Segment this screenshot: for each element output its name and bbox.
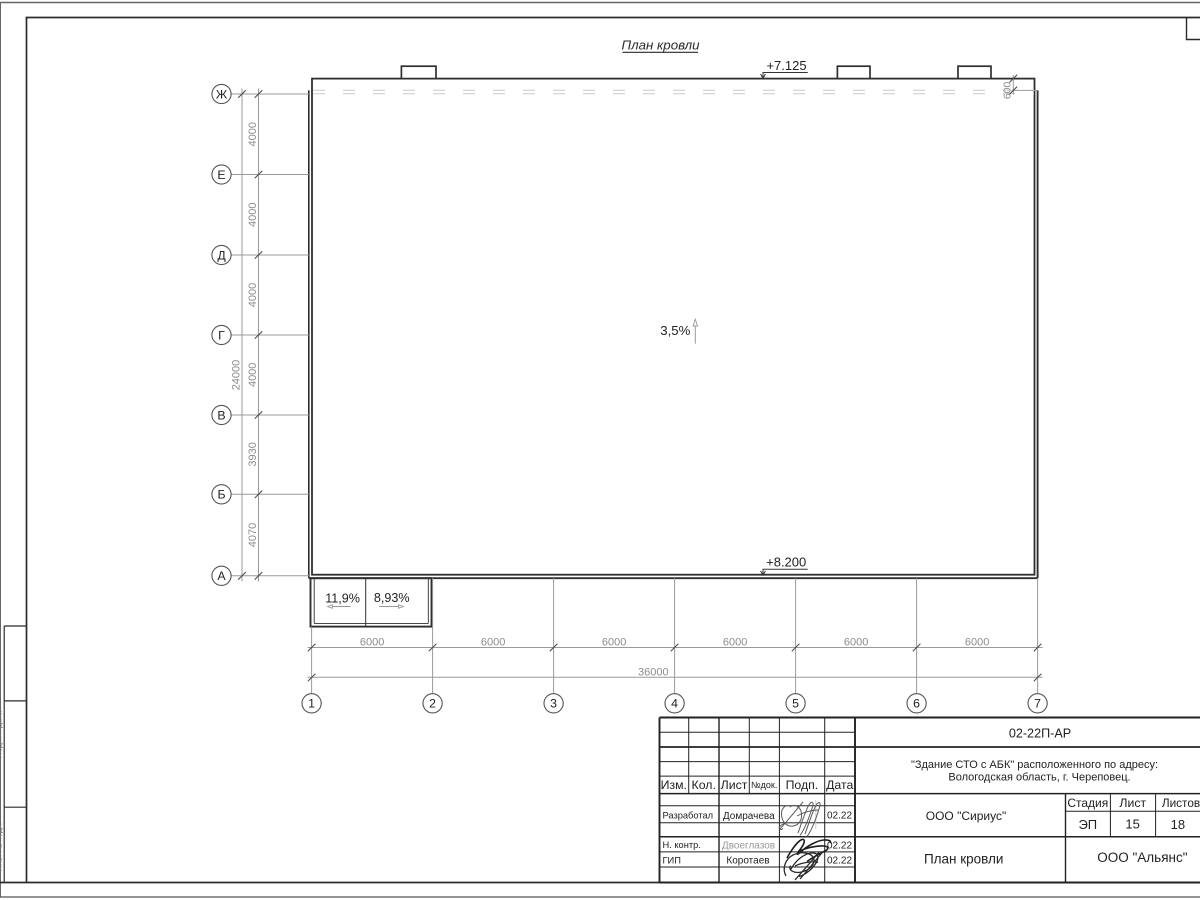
svg-text:Домрачева: Домрачева (723, 811, 775, 822)
svg-text:2: 2 (429, 697, 436, 711)
svg-text:6000: 6000 (965, 637, 989, 649)
svg-text:План кровли: План кровли (621, 38, 700, 53)
svg-text:02.22: 02.22 (827, 856, 852, 867)
svg-text:Дата: Дата (826, 778, 853, 792)
svg-text:6000: 6000 (723, 637, 747, 649)
svg-text:Двоеглазов: Двоеглазов (722, 841, 775, 852)
svg-text:Разработал: Разработал (663, 811, 714, 821)
svg-text:11,9%: 11,9% (325, 591, 360, 605)
svg-text:План кровли: План кровли (924, 851, 1004, 866)
svg-text:В: В (217, 408, 225, 422)
svg-text:4070: 4070 (247, 523, 259, 547)
svg-text:4000: 4000 (247, 283, 259, 307)
svg-text:3: 3 (550, 697, 557, 711)
svg-text:Е: Е (217, 168, 225, 182)
svg-text:15: 15 (1125, 817, 1139, 832)
svg-text:Вологодская область, г. Черепо: Вологодская область, г. Череповец. (948, 772, 1130, 784)
svg-text:4000: 4000 (247, 363, 259, 387)
svg-text:02-22П-АР: 02-22П-АР (1009, 726, 1071, 740)
svg-text:4000: 4000 (247, 122, 259, 146)
svg-text:1: 1 (308, 697, 315, 711)
svg-text:Н. контр.: Н. контр. (663, 840, 701, 850)
svg-text:Лист: Лист (1119, 796, 1146, 810)
svg-text:Кол.: Кол. (692, 778, 716, 792)
svg-text:36000: 36000 (638, 667, 669, 679)
svg-text:Г: Г (218, 328, 225, 342)
svg-text:6000: 6000 (844, 637, 868, 649)
svg-text:ГИП: ГИП (663, 855, 681, 865)
svg-text:ООО "Сириус": ООО "Сириус" (926, 809, 1006, 823)
svg-text:Ж: Ж (216, 87, 228, 101)
svg-text:6000: 6000 (360, 637, 384, 649)
svg-text:Коротаев: Коротаев (726, 856, 769, 867)
svg-text:+7.125: +7.125 (766, 58, 806, 73)
svg-text:18: 18 (1171, 817, 1185, 832)
svg-text:6000: 6000 (602, 637, 626, 649)
svg-text:ООО "Альянс": ООО "Альянс" (1097, 850, 1187, 865)
svg-text:6000: 6000 (481, 637, 505, 649)
svg-text:5: 5 (792, 697, 799, 711)
svg-text:7: 7 (1034, 697, 1041, 711)
svg-text:24000: 24000 (231, 360, 243, 391)
svg-text:Лист: Лист (721, 778, 748, 792)
svg-text:Изм.: Изм. (661, 778, 687, 792)
svg-text:ЭП: ЭП (1078, 817, 1097, 832)
svg-text:02.22: 02.22 (827, 811, 852, 822)
svg-text:Инв. № подл.: Инв. № подл. (0, 822, 4, 872)
svg-text:3930: 3930 (247, 442, 259, 466)
svg-text:Подп.: Подп. (786, 778, 819, 792)
svg-text:А: А (217, 569, 226, 583)
svg-text:"Здание СТО с АБК" расположенн: "Здание СТО с АБК" расположенного по адр… (911, 759, 1158, 771)
svg-text:600: 600 (1002, 81, 1014, 99)
svg-text:8,93%: 8,93% (374, 591, 410, 605)
svg-text:Стадия: Стадия (1067, 796, 1108, 810)
svg-text:4: 4 (671, 697, 678, 711)
svg-text:+8.200: +8.200 (766, 555, 806, 570)
svg-text:6: 6 (913, 697, 920, 711)
svg-text:3,5%: 3,5% (660, 323, 690, 338)
svg-text:Подп. и дата: Подп. и дата (0, 710, 4, 758)
svg-text:Д: Д (217, 248, 226, 262)
svg-text:Б: Б (217, 488, 225, 502)
svg-text:№док.: №док. (751, 780, 777, 790)
svg-text:4000: 4000 (247, 202, 259, 226)
svg-text:Листов: Листов (1162, 796, 1200, 810)
